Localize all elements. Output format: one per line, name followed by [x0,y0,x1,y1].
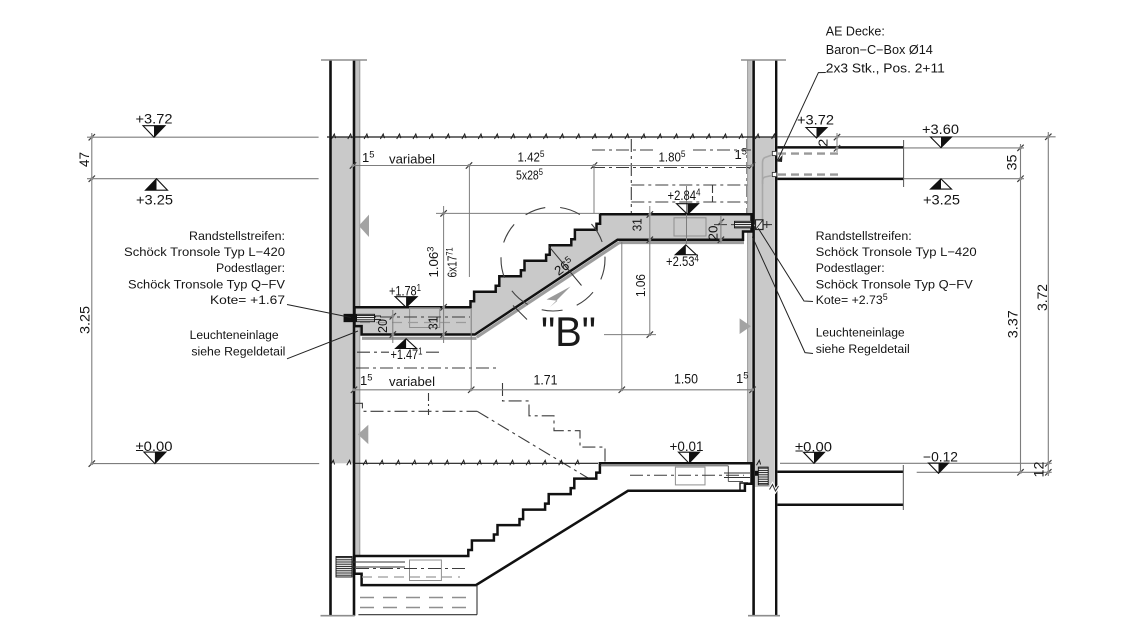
svg-text:Kote= +1.67: Kote= +1.67 [210,293,285,307]
svg-text:variabel: variabel [389,375,435,389]
svg-text:Schöck Tronsole Typ Q−FV: Schöck Tronsole Typ Q−FV [816,277,974,291]
svg-text:+2.534: +2.534 [666,254,700,270]
svg-text:±0.00: ±0.00 [136,439,173,454]
svg-text:Leuchteneinlage: Leuchteneinlage [816,326,905,340]
svg-text:20: 20 [375,319,390,333]
svg-text:Randstellstreifen:: Randstellstreifen: [816,229,912,243]
svg-text:31: 31 [629,218,644,231]
svg-text:+3.60: +3.60 [922,122,959,137]
svg-text:3.25: 3.25 [78,306,93,334]
svg-text:−0.12: −0.12 [923,449,958,464]
svg-text:AE Decke:: AE Decke: [826,25,885,39]
svg-text:3.72: 3.72 [1035,284,1050,311]
svg-text:+3.25: +3.25 [923,193,960,208]
svg-text:1.06: 1.06 [633,274,648,297]
svg-text:Leuchteneinlage: Leuchteneinlage [190,328,279,342]
svg-text:35: 35 [1005,155,1020,171]
svg-text:3.37: 3.37 [1006,310,1021,338]
svg-text:Podestlager:: Podestlager: [216,261,285,275]
svg-text:Schöck Tronsole Typ L−420: Schöck Tronsole Typ L−420 [124,245,285,259]
svg-text:+1.471: +1.471 [391,347,423,363]
svg-text:31: 31 [426,317,441,331]
svg-text:+3.25: +3.25 [136,193,173,208]
svg-text:variabel: variabel [389,153,435,167]
svg-text:20: 20 [705,226,720,241]
svg-text:1.71: 1.71 [534,373,558,388]
svg-text:47: 47 [77,152,92,167]
svg-text:Schöck Tronsole Typ L−420: Schöck Tronsole Typ L−420 [816,245,977,259]
svg-text:siehe Regeldetail: siehe Regeldetail [191,344,285,358]
svg-text:Kote= +2.735: Kote= +2.735 [816,292,888,307]
svg-text:+1.781: +1.781 [389,283,421,299]
svg-text:1.50: 1.50 [674,372,698,387]
svg-text:+0.01: +0.01 [670,439,704,454]
svg-text:+2.844: +2.844 [668,188,702,204]
svg-text:Randstellstreifen:: Randstellstreifen: [189,229,285,243]
svg-text:12: 12 [1032,462,1047,478]
svg-text:2x3 Stk., Pos. 2+11: 2x3 Stk., Pos. 2+11 [826,61,945,75]
svg-text:+3.72: +3.72 [136,112,173,127]
svg-text:siehe Regeldetail: siehe Regeldetail [816,342,910,356]
svg-text:"B": "B" [541,308,596,355]
svg-text:2: 2 [816,139,831,147]
svg-text:Baron−C−Box Ø14: Baron−C−Box Ø14 [826,43,933,57]
svg-text:Schöck Tronsole Typ Q−FV: Schöck Tronsole Typ Q−FV [128,277,286,291]
svg-text:+3.72: +3.72 [797,113,834,128]
svg-text:Podestlager:: Podestlager: [816,261,885,275]
